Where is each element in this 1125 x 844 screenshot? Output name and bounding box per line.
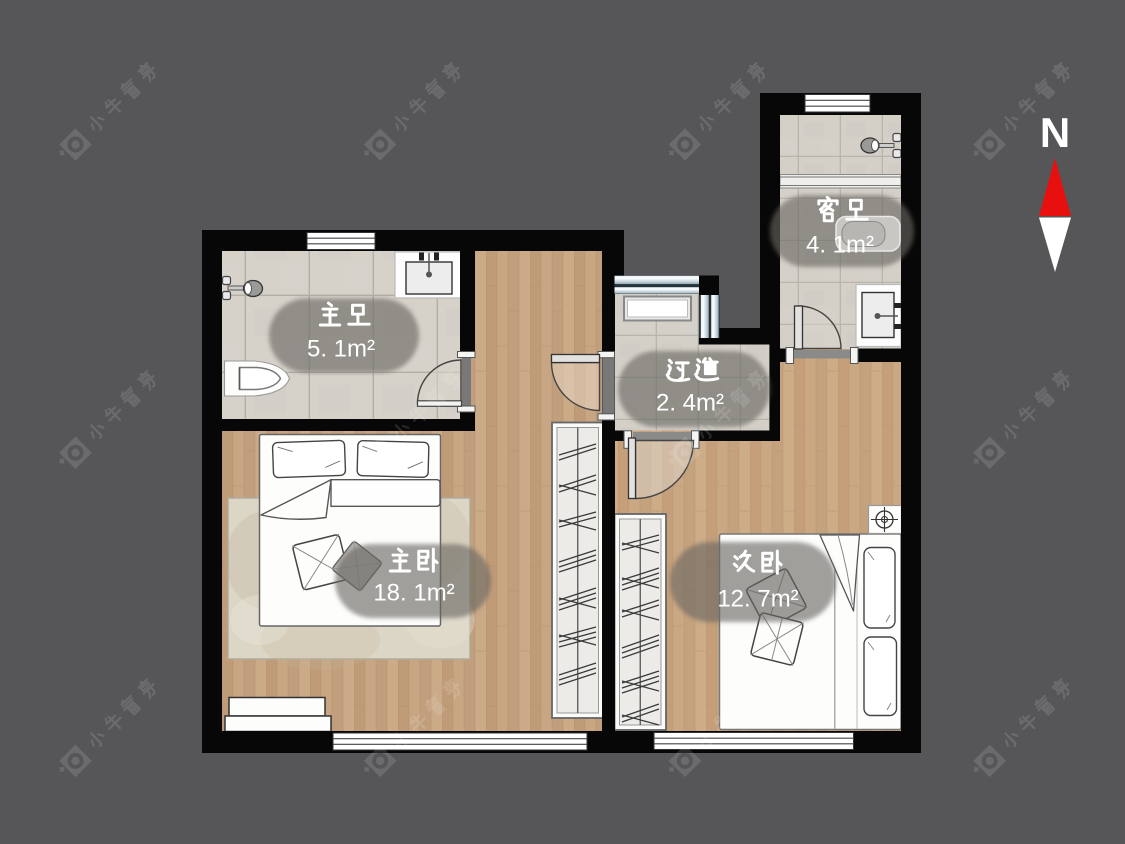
svg-text:18. 1m²: 18. 1m²	[373, 579, 454, 606]
svg-text:5. 1m²: 5. 1m²	[307, 335, 375, 362]
svg-text:N: N	[1040, 109, 1070, 156]
svg-text:2. 4m²: 2. 4m²	[656, 389, 724, 416]
svg-text:4. 1m²: 4. 1m²	[806, 231, 874, 258]
svg-text:12. 7m²: 12. 7m²	[717, 585, 798, 612]
